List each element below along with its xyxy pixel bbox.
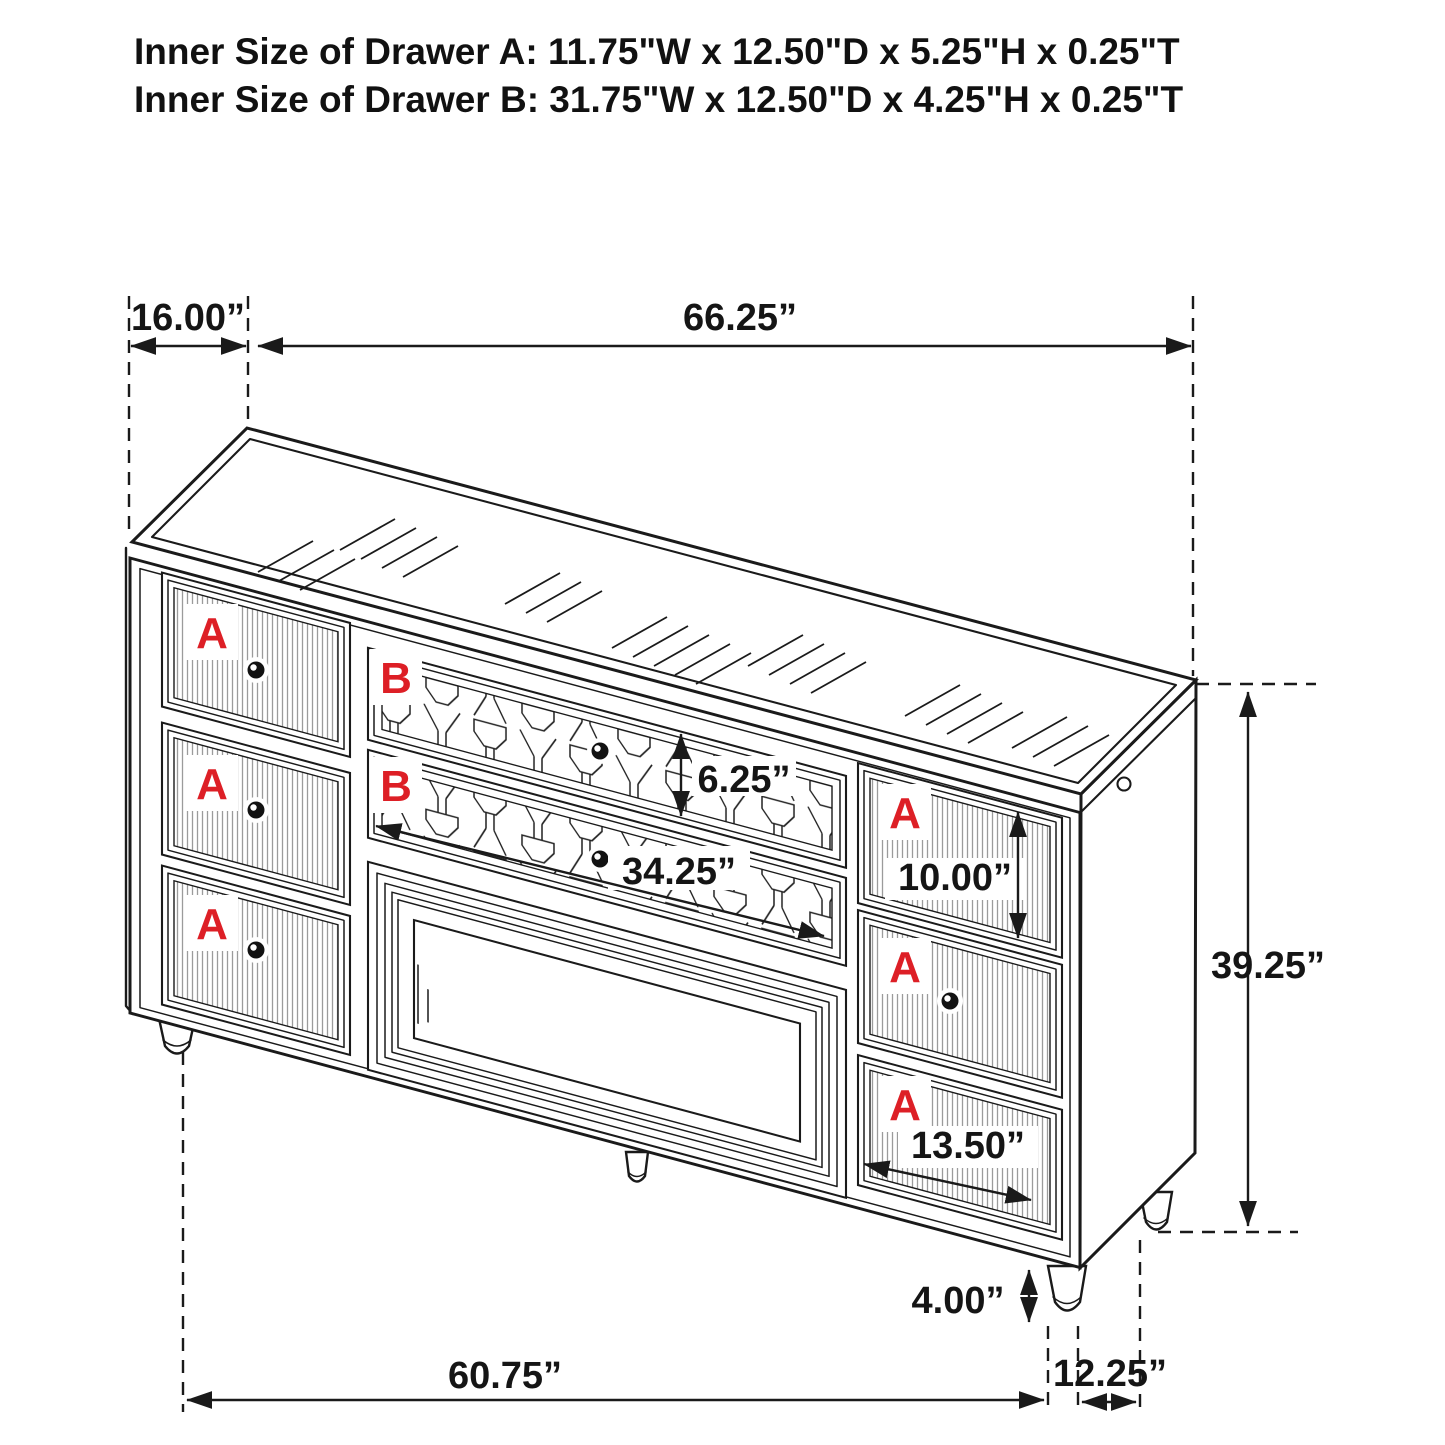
- drawer-knob: [243, 657, 269, 683]
- dimension-label-top-depth: 16.00”: [131, 297, 245, 339]
- dimension-label-overall-height: 39.25”: [1211, 945, 1325, 987]
- dimension-label-side-depth-legs: 12.25”: [1053, 1353, 1167, 1395]
- furniture-dimension-diagram: Inner Size of Drawer A: 11.75"W x 12.50"…: [0, 0, 1445, 1445]
- drawer-letter: A: [889, 789, 921, 838]
- dimension-label-leg-height: 4.00”: [912, 1280, 1005, 1322]
- dimension-label-top-width: 66.25”: [683, 297, 797, 339]
- drawer-letter: A: [196, 900, 228, 949]
- dimension-label-drawer-b-height: 6.25”: [698, 759, 791, 801]
- title-line-1: Inner Size of Drawer A: 11.75"W x 12.50"…: [134, 31, 1180, 72]
- dimension-label-right-drawer-width: 13.50”: [911, 1125, 1025, 1167]
- drawer-letter: A: [196, 760, 228, 809]
- drawer-letter: A: [889, 943, 921, 992]
- drawer-letter: B: [380, 762, 412, 811]
- side-panel-hole: [1118, 778, 1131, 791]
- dresser-diagram-canvas: Inner Size of Drawer A: 11.75"W x 12.50"…: [0, 0, 1445, 1445]
- drawer-letter: A: [889, 1081, 921, 1130]
- center-leg: [626, 1152, 648, 1182]
- drawer-knob: [243, 937, 269, 963]
- dimension-label-front-width-legs: 60.75”: [448, 1355, 562, 1397]
- drawer-letter: A: [196, 609, 228, 658]
- front-right-leg: [1048, 1266, 1086, 1311]
- drawer-letter: B: [380, 654, 412, 703]
- dimension-label-right-drawer-height: 10.00”: [898, 857, 1012, 899]
- title-line-2: Inner Size of Drawer B: 31.75"W x 12.50"…: [134, 79, 1183, 120]
- dimension-leg-height: 4.00”: [912, 1270, 1029, 1322]
- drawer-knob: [937, 988, 963, 1014]
- dimension-label-drawer-b-width: 34.25”: [622, 851, 736, 893]
- drawer-knob: [587, 738, 613, 764]
- drawer-knob: [243, 797, 269, 823]
